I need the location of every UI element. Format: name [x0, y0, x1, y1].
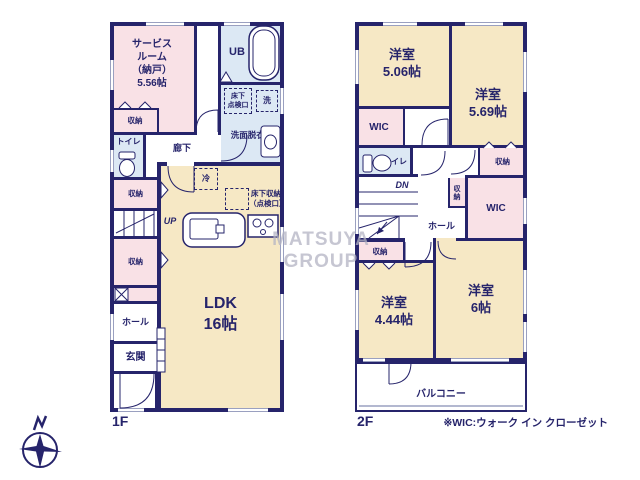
wall-segment: [143, 135, 146, 177]
window: [355, 50, 359, 84]
window: [523, 270, 527, 314]
room-unit-bath: UB: [221, 22, 284, 82]
underfloor-access-box: 床下 点検口: [224, 88, 252, 114]
wall-segment: [448, 206, 465, 208]
wall-segment: [218, 22, 221, 135]
ub-entry: [197, 22, 218, 135]
wall-segment: [110, 208, 160, 211]
closet-a: 収納: [480, 148, 525, 175]
window: [118, 408, 144, 412]
floor1-label: 1F: [112, 413, 128, 429]
window: [280, 294, 284, 340]
door-arc: [451, 150, 475, 174]
window: [110, 60, 114, 90]
room-6: 洋室 6帖: [435, 238, 527, 362]
washer-box: 洗: [256, 90, 278, 112]
closet-b: 収納: [448, 178, 465, 208]
wall-segment: [456, 238, 527, 241]
wall-segment: [433, 238, 436, 362]
wall-segment: [448, 178, 450, 208]
underfloor-storage-label: 床下収納 （点検口）: [249, 189, 283, 209]
wall-segment: [110, 341, 160, 344]
floor2-plan: 洋室 5.06帖 洋室 5.69帖 WIC トイレ 収納 ホール 収納 WIC …: [355, 22, 527, 412]
wall-segment: [110, 177, 160, 180]
wall-segment: [110, 285, 160, 288]
wall-segment: [157, 166, 161, 412]
wall-segment: [355, 145, 452, 148]
wall-segment: [221, 82, 284, 85]
window: [383, 22, 417, 26]
shaft-icon: [115, 288, 128, 301]
wall-segment: [110, 132, 197, 135]
window: [110, 314, 114, 340]
floor1-plan: サービス ルーム （納戸） 5.56帖 収納 UB トイレ 廊下 収納 収納 ホ…: [110, 22, 284, 412]
room-toilet-1f: トイレ: [114, 135, 143, 177]
fridge-box: 冷: [194, 168, 218, 190]
wall-segment: [449, 145, 527, 148]
wall-segment: [410, 148, 413, 177]
stairs-down-label: DN: [391, 180, 413, 192]
window: [523, 198, 527, 224]
wall-segment: [449, 22, 452, 148]
floorplan-canvas: サービス ルーム （納戸） 5.56帖 収納 UB トイレ 廊下 収納 収納 ホ…: [0, 0, 640, 480]
washroom-label: 洗面脱衣室: [222, 130, 282, 141]
wall-segment: [194, 162, 284, 166]
wic-note: ※WIC:ウォーク イン クローゼット: [418, 415, 608, 430]
stairs-up-label: UP: [159, 216, 181, 228]
wic-b: WIC: [465, 178, 527, 238]
room-506: 洋室 5.06帖: [355, 22, 449, 106]
door-arc: [422, 119, 448, 145]
watermark: MATSUYA GROUP: [236, 229, 406, 273]
compass-north-icon: [12, 412, 70, 476]
stairs-up-area: [114, 211, 157, 236]
floor2-label: 2F: [357, 413, 373, 429]
wall-segment: [465, 175, 527, 178]
closet-service: 収納: [113, 108, 159, 132]
wic-a: WIC: [355, 109, 403, 145]
window: [280, 88, 284, 114]
pink-strip: [128, 288, 157, 301]
porch: [114, 374, 157, 408]
window: [110, 150, 114, 172]
wall-segment: [110, 301, 160, 304]
window: [523, 52, 527, 92]
window: [465, 22, 503, 26]
hall-1f: ホール: [114, 304, 157, 341]
wall-segment: [465, 178, 468, 238]
wall-segment: [110, 22, 284, 26]
window: [451, 358, 509, 362]
window: [146, 22, 184, 26]
balcony: バルコニー: [355, 362, 527, 412]
room-569: 洋室 5.69帖: [449, 22, 527, 145]
wall-segment: [110, 236, 160, 239]
wall-segment: [194, 22, 197, 132]
closet-3: 収納: [114, 239, 157, 285]
window: [523, 322, 527, 352]
window: [363, 358, 385, 362]
corridor: 廊下: [146, 135, 218, 162]
window: [228, 408, 268, 412]
underfloor-storage-box: [225, 188, 249, 210]
wall-segment: [403, 109, 405, 148]
window: [355, 290, 359, 330]
room-444: 洋室 4.44帖: [355, 262, 433, 362]
door-arc: [421, 151, 445, 175]
wall-segment: [355, 174, 418, 177]
closet-2: 収納: [114, 180, 157, 208]
window: [224, 22, 250, 26]
wall-segment: [478, 148, 480, 175]
entrance: 玄関: [114, 344, 157, 371]
wall-segment: [280, 22, 284, 412]
wall-segment: [110, 371, 160, 374]
room-toilet-2f: トイレ: [355, 148, 410, 176]
